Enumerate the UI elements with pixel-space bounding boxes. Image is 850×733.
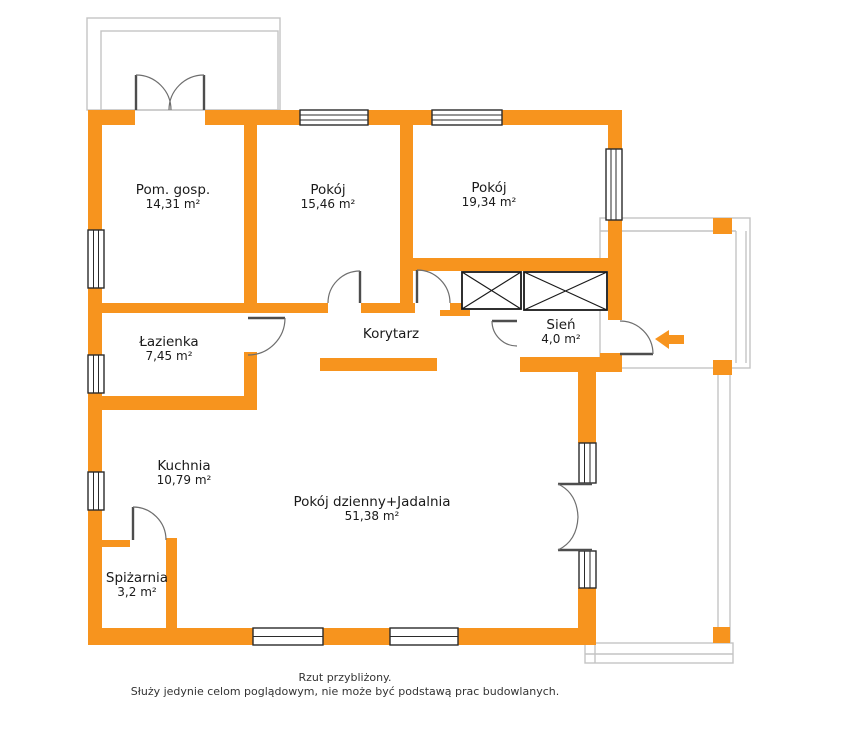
room-name: Spiżarnia	[106, 570, 168, 586]
terrace-right	[585, 368, 733, 663]
porch-top-left	[87, 18, 280, 110]
room-name: Pokój	[301, 182, 356, 198]
window-bottom-1	[253, 628, 323, 645]
room-area: 19,34 m²	[462, 196, 517, 209]
window-left-3	[88, 472, 104, 510]
door-sien-korytarz	[492, 321, 517, 346]
double-door-pom-gosp	[136, 75, 204, 110]
room-name: Pokój	[462, 180, 517, 196]
window-left-1	[88, 230, 104, 288]
room-label-korytarz: Korytarz	[363, 326, 419, 342]
room-label-spizarnia: Spiżarnia 3,2 m²	[106, 570, 168, 599]
entrance-porch	[600, 218, 750, 368]
door-spizarnia	[133, 507, 166, 540]
room-area: 51,38 m²	[293, 510, 450, 523]
room-area: 7,45 m²	[139, 350, 198, 363]
room-name: Sień	[541, 317, 580, 333]
window-right-1	[606, 149, 622, 220]
door-pokoj-2	[417, 270, 450, 303]
entrance-arrow-icon	[655, 330, 684, 349]
floor-plan-page: Pom. gosp. 14,31 m² Pokój 15,46 m² Pokój…	[0, 0, 850, 733]
room-label-lazienka: Łazienka 7,45 m²	[139, 334, 198, 363]
room-name: Łazienka	[139, 334, 198, 350]
room-label-pokoj-dzienny: Pokój dzienny+Jadalnia 51,38 m²	[293, 494, 450, 523]
room-area: 4,0 m²	[541, 333, 580, 346]
door-entrance	[620, 321, 653, 354]
window-living-2	[579, 551, 596, 588]
room-label-pokoj-1: Pokój 15,46 m²	[301, 182, 356, 211]
closet-1	[462, 272, 521, 309]
door-lazienka	[248, 318, 285, 355]
room-label-pom-gosp: Pom. gosp. 14,31 m²	[136, 182, 210, 211]
room-area: 15,46 m²	[301, 198, 356, 211]
floor-plan-drawing	[0, 0, 850, 733]
room-name: Pom. gosp.	[136, 182, 210, 198]
room-name: Pokój dzienny+Jadalnia	[293, 494, 450, 510]
window-left-2	[88, 355, 104, 393]
room-area: 10,79 m²	[157, 474, 212, 487]
closet-2	[524, 272, 607, 310]
disclaimer-line-2: Służy jedynie celom poglądowym, nie może…	[95, 685, 595, 699]
disclaimer-line-1: Rzut przybliżony.	[95, 671, 595, 685]
room-area: 14,31 m²	[136, 198, 210, 211]
room-area: 3,2 m²	[106, 586, 168, 599]
room-name: Korytarz	[363, 326, 419, 342]
window-living-1	[579, 443, 596, 483]
terrace-posts	[713, 218, 732, 643]
door-pokoj-1	[328, 271, 360, 303]
disclaimer: Rzut przybliżony. Służy jedynie celom po…	[95, 671, 595, 698]
window-top-2	[432, 110, 502, 125]
room-label-pokoj-2: Pokój 19,34 m²	[462, 180, 517, 209]
window-bottom-2	[390, 628, 458, 645]
room-name: Kuchnia	[157, 458, 212, 474]
window-top-1	[300, 110, 368, 125]
room-label-kuchnia: Kuchnia 10,79 m²	[157, 458, 212, 487]
french-door-living	[558, 484, 592, 550]
room-label-sien: Sień 4,0 m²	[541, 317, 580, 346]
